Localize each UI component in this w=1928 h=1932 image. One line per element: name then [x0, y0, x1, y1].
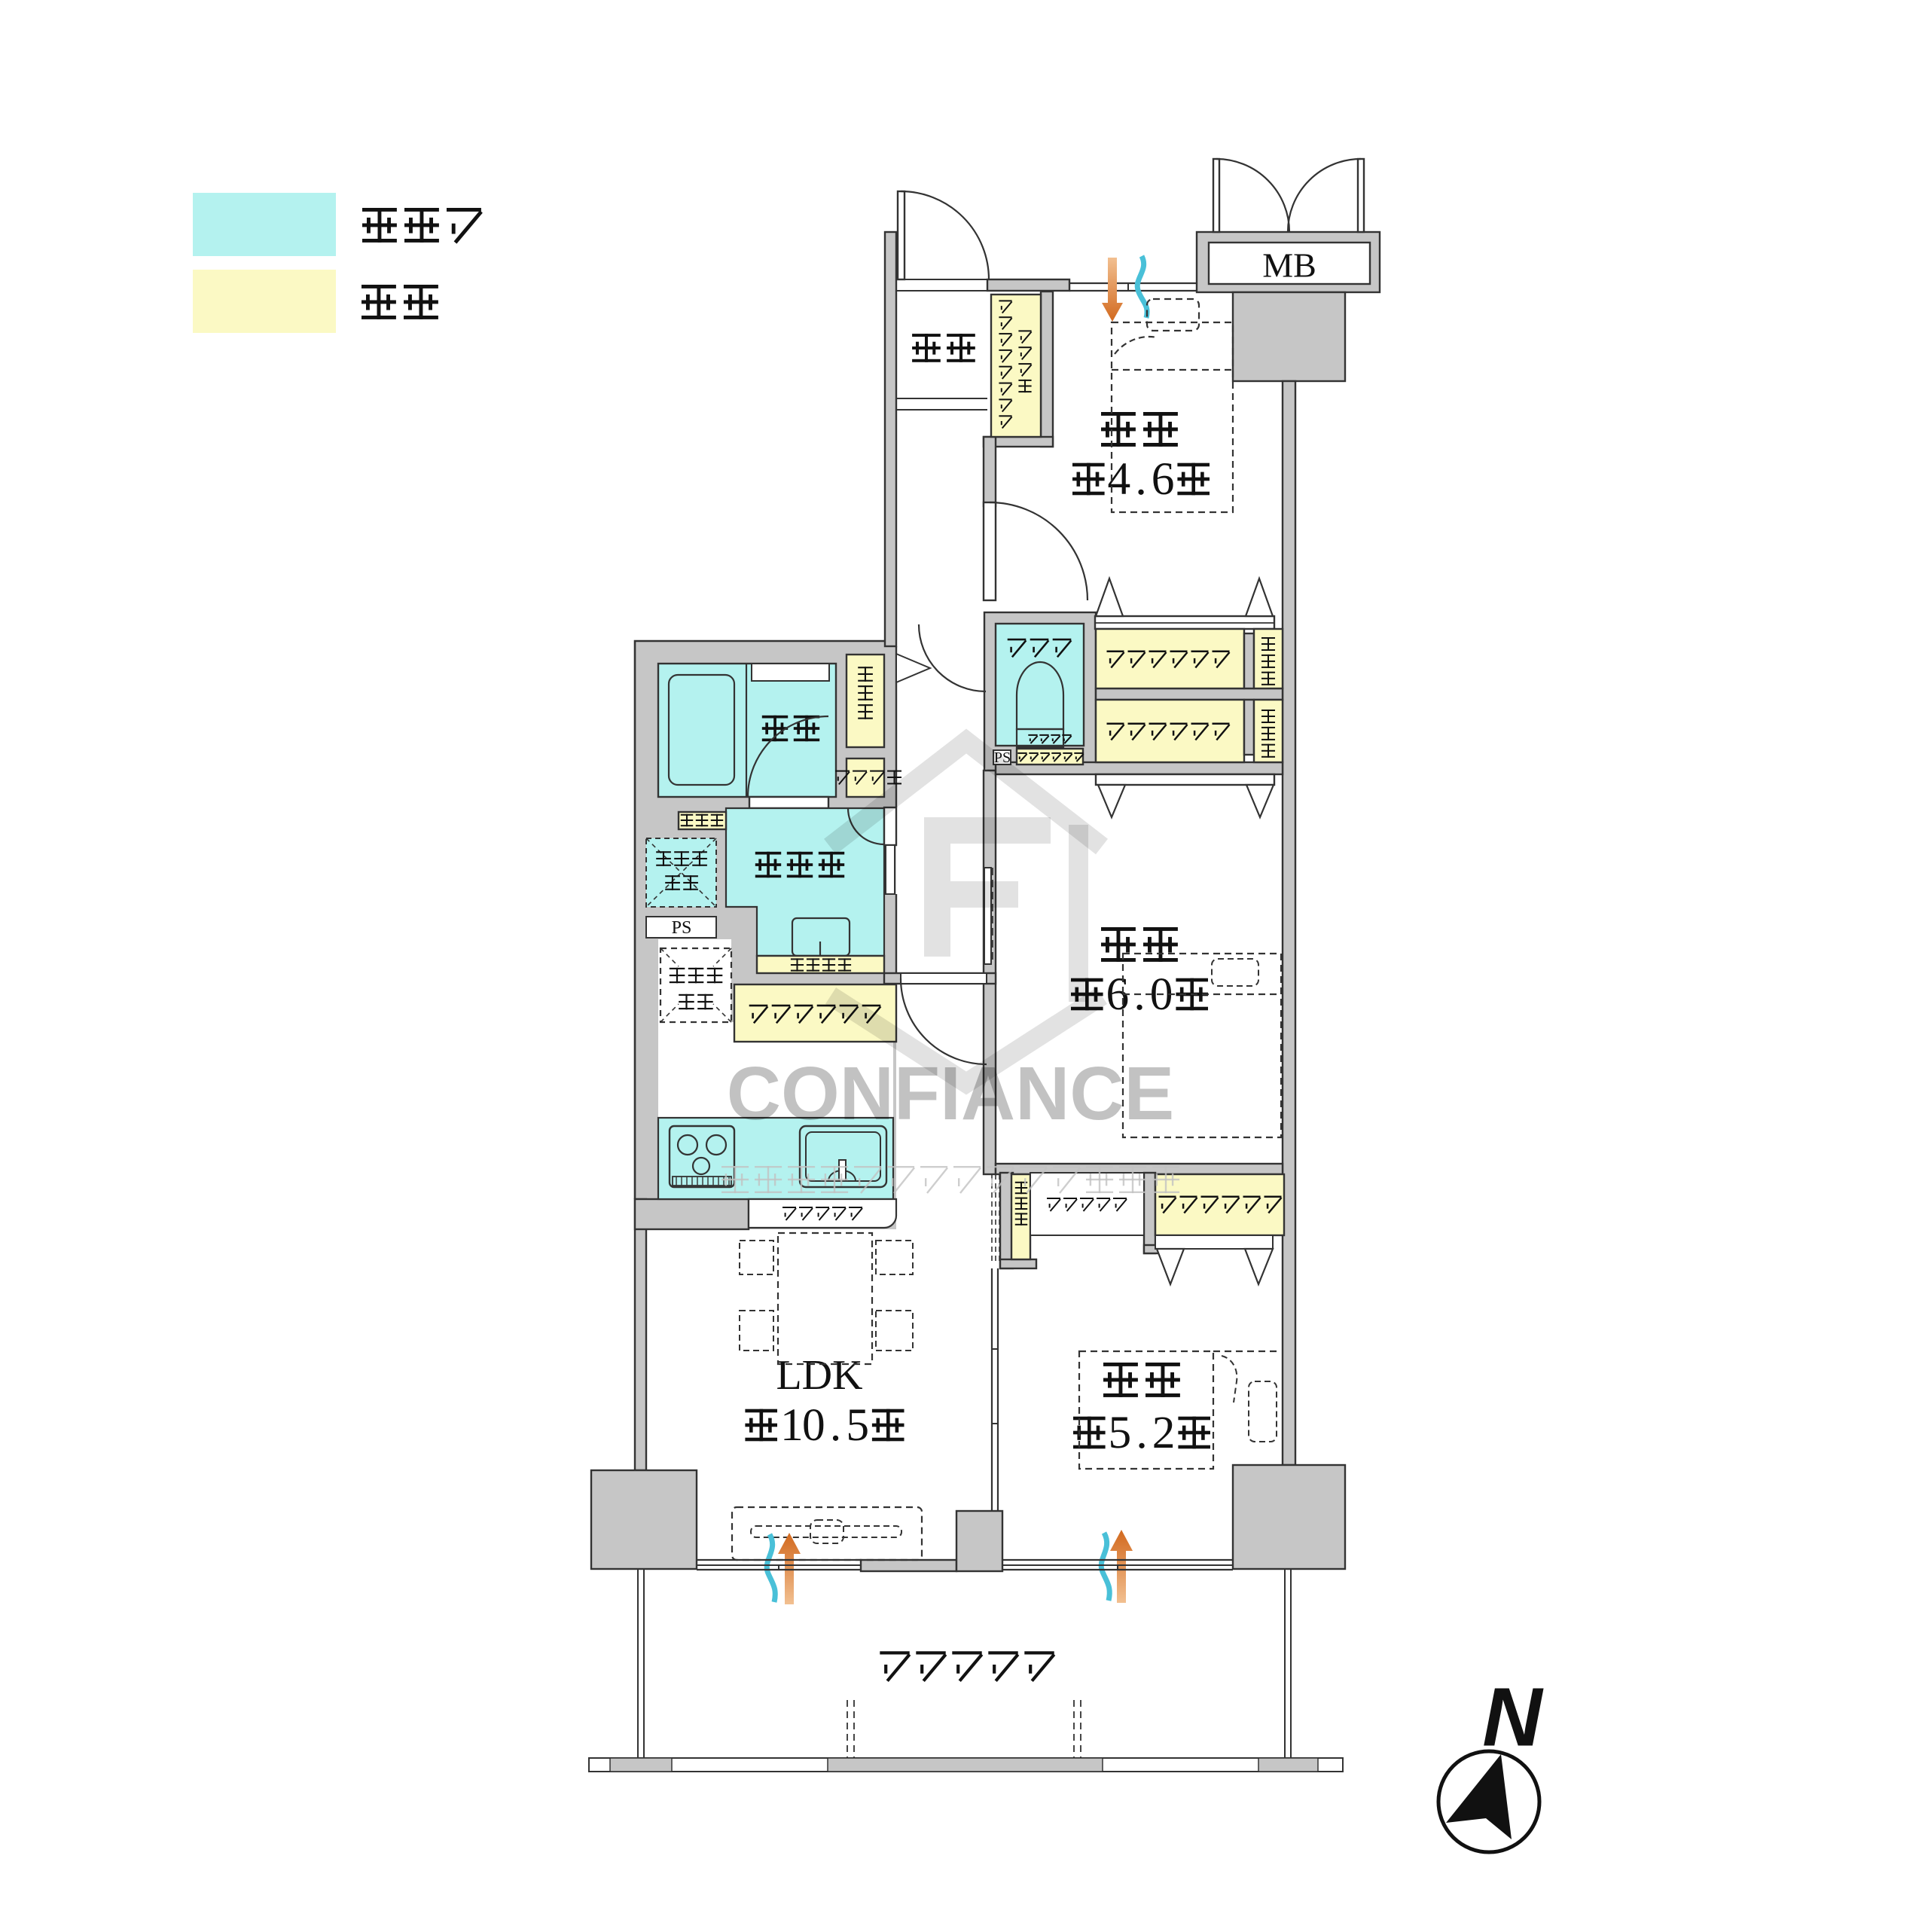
svg-text:CONFIANCE: CONFIANCE	[727, 1051, 1174, 1136]
svg-text:5: 5	[846, 1399, 869, 1451]
svg-text:.: .	[830, 1399, 841, 1451]
svg-text:.: .	[1135, 453, 1146, 505]
svg-text:5: 5	[1109, 1407, 1132, 1458]
svg-text:0: 0	[802, 1399, 825, 1451]
svg-text:1: 1	[780, 1399, 804, 1451]
svg-text:LDK: LDK	[776, 1352, 862, 1399]
svg-text:.: .	[1136, 1407, 1147, 1458]
svg-text:6: 6	[1152, 453, 1175, 505]
svg-text:PS: PS	[672, 918, 692, 938]
svg-text:2: 2	[1152, 1407, 1176, 1458]
svg-text:MB: MB	[1262, 246, 1316, 285]
